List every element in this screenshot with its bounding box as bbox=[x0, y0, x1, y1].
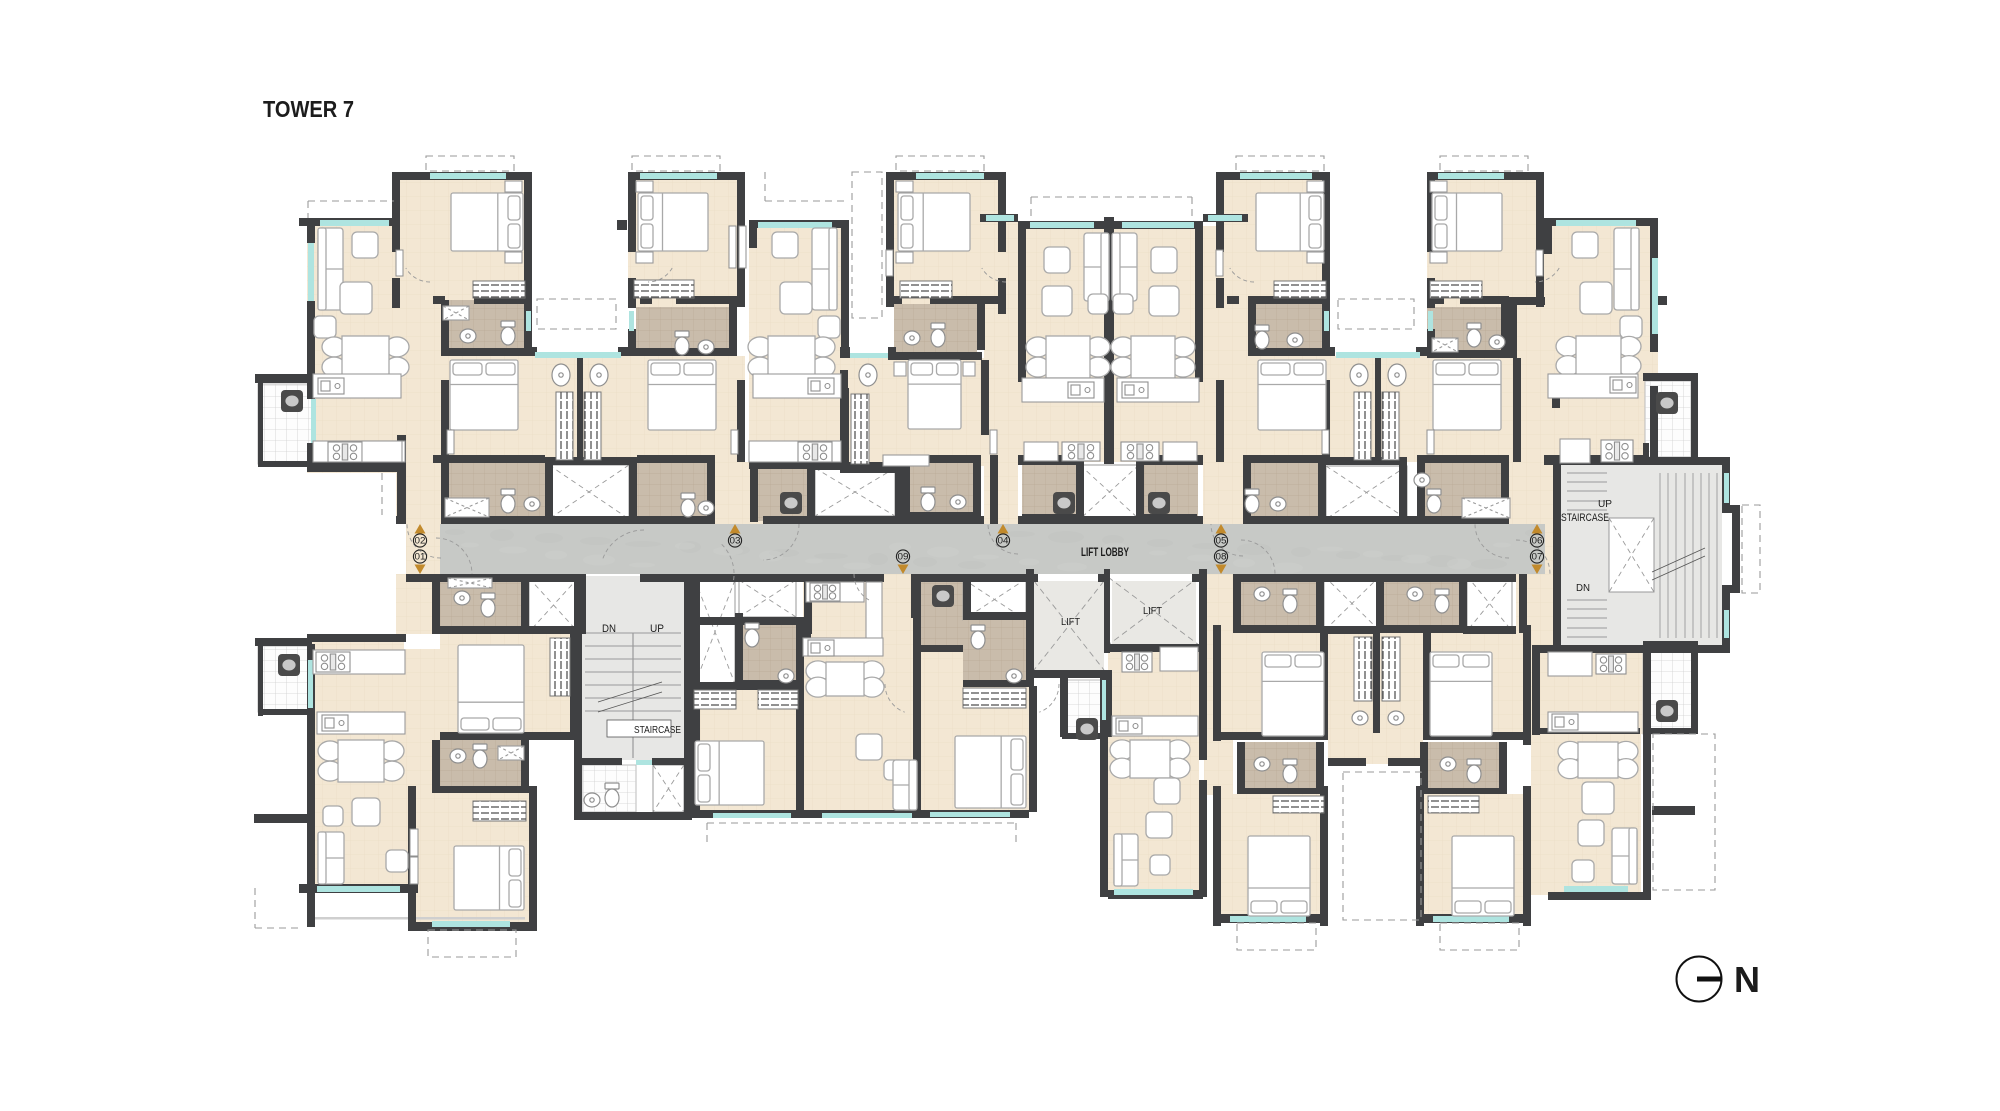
svg-text:09: 09 bbox=[898, 552, 909, 562]
svg-text:LIFT: LIFT bbox=[1143, 606, 1162, 617]
svg-text:DN: DN bbox=[1576, 582, 1590, 594]
svg-text:03: 03 bbox=[730, 536, 741, 546]
svg-text:05: 05 bbox=[1216, 536, 1227, 546]
svg-text:UP: UP bbox=[650, 623, 664, 635]
svg-text:N: N bbox=[1734, 959, 1760, 1000]
svg-text:04: 04 bbox=[998, 536, 1009, 546]
svg-text:LIFT LOBBY: LIFT LOBBY bbox=[1081, 547, 1129, 559]
svg-text:STAIRCASE: STAIRCASE bbox=[634, 724, 681, 736]
svg-text:LIFT: LIFT bbox=[1061, 617, 1080, 628]
svg-text:DN: DN bbox=[602, 623, 616, 635]
svg-text:02: 02 bbox=[415, 536, 426, 546]
svg-text:UP: UP bbox=[1598, 498, 1612, 510]
svg-text:01: 01 bbox=[415, 552, 426, 562]
svg-text:STAIRCASE: STAIRCASE bbox=[1561, 512, 1609, 524]
svg-text:TOWER 7: TOWER 7 bbox=[263, 96, 354, 122]
svg-text:08: 08 bbox=[1216, 552, 1227, 562]
svg-text:06: 06 bbox=[1532, 536, 1543, 546]
svg-text:07: 07 bbox=[1532, 552, 1543, 562]
